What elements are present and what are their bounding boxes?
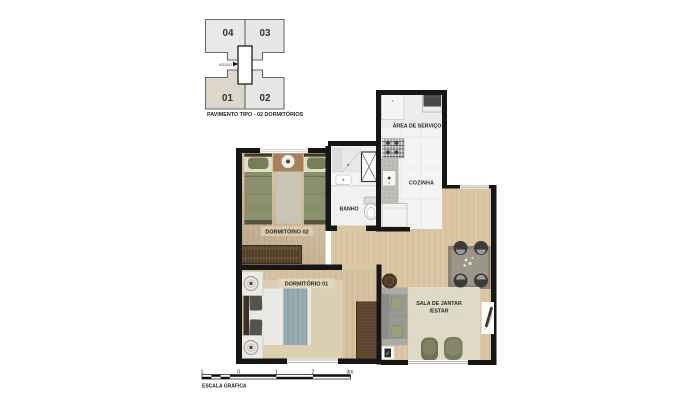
svg-text:ESCALA GRÁFICA: ESCALA GRÁFICA: [202, 383, 247, 390]
svg-text:DORMITÓRIO 02: DORMITÓRIO 02: [265, 228, 308, 236]
svg-text:BANHO: BANHO: [339, 207, 358, 213]
svg-text:04: 04: [223, 28, 234, 39]
svg-text:ÁREA DE SERVIÇO: ÁREA DE SERVIÇO: [393, 123, 442, 130]
svg-text:03: 03: [260, 28, 271, 39]
svg-text:COZINHA: COZINHA: [409, 181, 434, 187]
svg-text:ACESSO: ACESSO: [219, 63, 233, 67]
svg-text:/ESTAR: /ESTAR: [429, 308, 448, 314]
svg-text:DORMITÓRIO 01: DORMITÓRIO 01: [285, 280, 328, 288]
svg-text:SALA DE JANTAR: SALA DE JANTAR: [416, 301, 462, 307]
